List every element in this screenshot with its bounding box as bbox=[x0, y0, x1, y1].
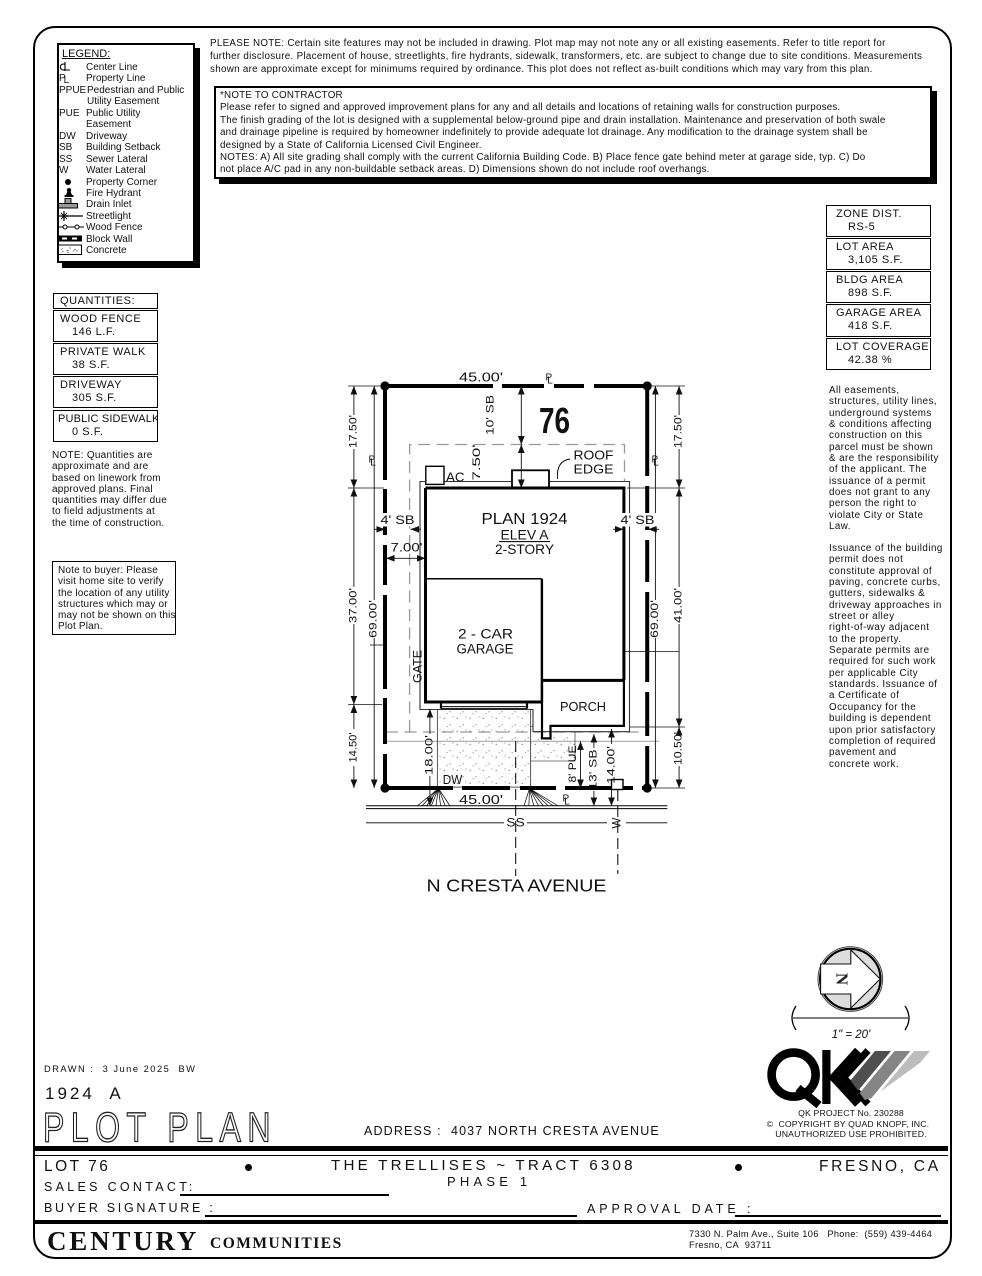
svg-text:13' SB: 13' SB bbox=[588, 750, 600, 790]
svg-text:L: L bbox=[547, 375, 553, 386]
svg-text:18.00': 18.00' bbox=[423, 735, 435, 775]
svg-text:69.00': 69.00' bbox=[649, 600, 661, 638]
svg-text:10.50': 10.50' bbox=[673, 732, 685, 765]
svg-text:76: 76 bbox=[539, 400, 570, 441]
svg-text:10' SB: 10' SB bbox=[485, 395, 497, 435]
svg-text:4' SB: 4' SB bbox=[621, 515, 655, 527]
svg-text:45.00': 45.00' bbox=[459, 793, 503, 807]
svg-text:ROOF: ROOF bbox=[574, 448, 614, 463]
svg-text:69.00': 69.00' bbox=[368, 600, 380, 638]
svg-text:N: N bbox=[833, 973, 852, 986]
svg-text:L: L bbox=[653, 457, 659, 468]
svg-text:W: W bbox=[611, 817, 623, 828]
svg-text:L: L bbox=[370, 457, 376, 468]
svg-text:14.00': 14.00' bbox=[606, 746, 618, 784]
svg-text:14.50': 14.50' bbox=[347, 733, 359, 763]
svg-text:GARAGE: GARAGE bbox=[457, 642, 514, 657]
svg-text:7.50': 7.50' bbox=[471, 445, 483, 481]
svg-text:2 - CAR: 2 - CAR bbox=[458, 627, 513, 642]
svg-text:8' PUE: 8' PUE bbox=[567, 746, 579, 783]
svg-text:17.50': 17.50' bbox=[347, 415, 359, 448]
svg-text:1" = 20': 1" = 20' bbox=[832, 1029, 871, 1041]
svg-text:L: L bbox=[564, 796, 570, 807]
svg-text:37.00': 37.00' bbox=[347, 588, 359, 623]
svg-text:45.00': 45.00' bbox=[459, 371, 503, 385]
svg-text:PORCH: PORCH bbox=[560, 700, 606, 714]
svg-text:41.00': 41.00' bbox=[673, 588, 685, 623]
svg-text:N CRESTA AVENUE: N CRESTA AVENUE bbox=[427, 876, 607, 896]
svg-text:ELEV A: ELEV A bbox=[501, 527, 549, 542]
svg-text:4' SB: 4' SB bbox=[381, 515, 415, 527]
svg-text:17.50': 17.50' bbox=[673, 415, 685, 448]
svg-text:7.00': 7.00' bbox=[391, 543, 423, 555]
svg-text:AC: AC bbox=[446, 470, 465, 485]
svg-text:2-STORY: 2-STORY bbox=[495, 542, 554, 557]
svg-text:PLAN 1924: PLAN 1924 bbox=[482, 511, 568, 528]
svg-text:SS: SS bbox=[506, 816, 525, 830]
svg-text:GATE: GATE bbox=[410, 650, 424, 683]
svg-text:DW: DW bbox=[443, 772, 463, 787]
svg-text:EDGE: EDGE bbox=[574, 462, 614, 477]
